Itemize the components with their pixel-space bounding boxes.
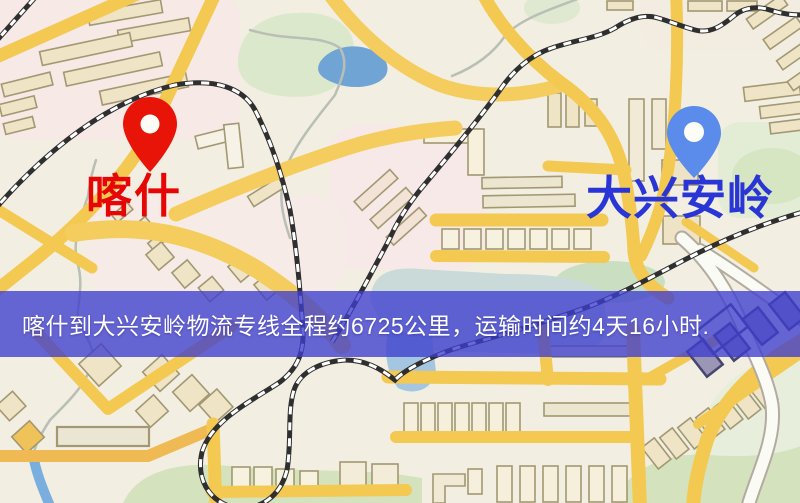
map-image bbox=[0, 0, 800, 503]
route-info-banner: 喀什到大兴安岭物流专线全程约6725公里，运输时间约4天16小时. bbox=[0, 291, 800, 357]
logistics-route-map: 喀什到大兴安岭物流专线全程约6725公里，运输时间约4天16小时. 喀什 大兴安… bbox=[0, 0, 800, 503]
route-info-text: 喀什到大兴安岭物流专线全程约6725公里，运输时间约4天16小时. bbox=[22, 307, 709, 341]
destination-label: 大兴安岭 bbox=[586, 176, 774, 222]
destination-pin-hole bbox=[684, 122, 704, 142]
origin-label: 喀什 bbox=[86, 174, 182, 220]
origin-pin-hole bbox=[141, 115, 160, 134]
